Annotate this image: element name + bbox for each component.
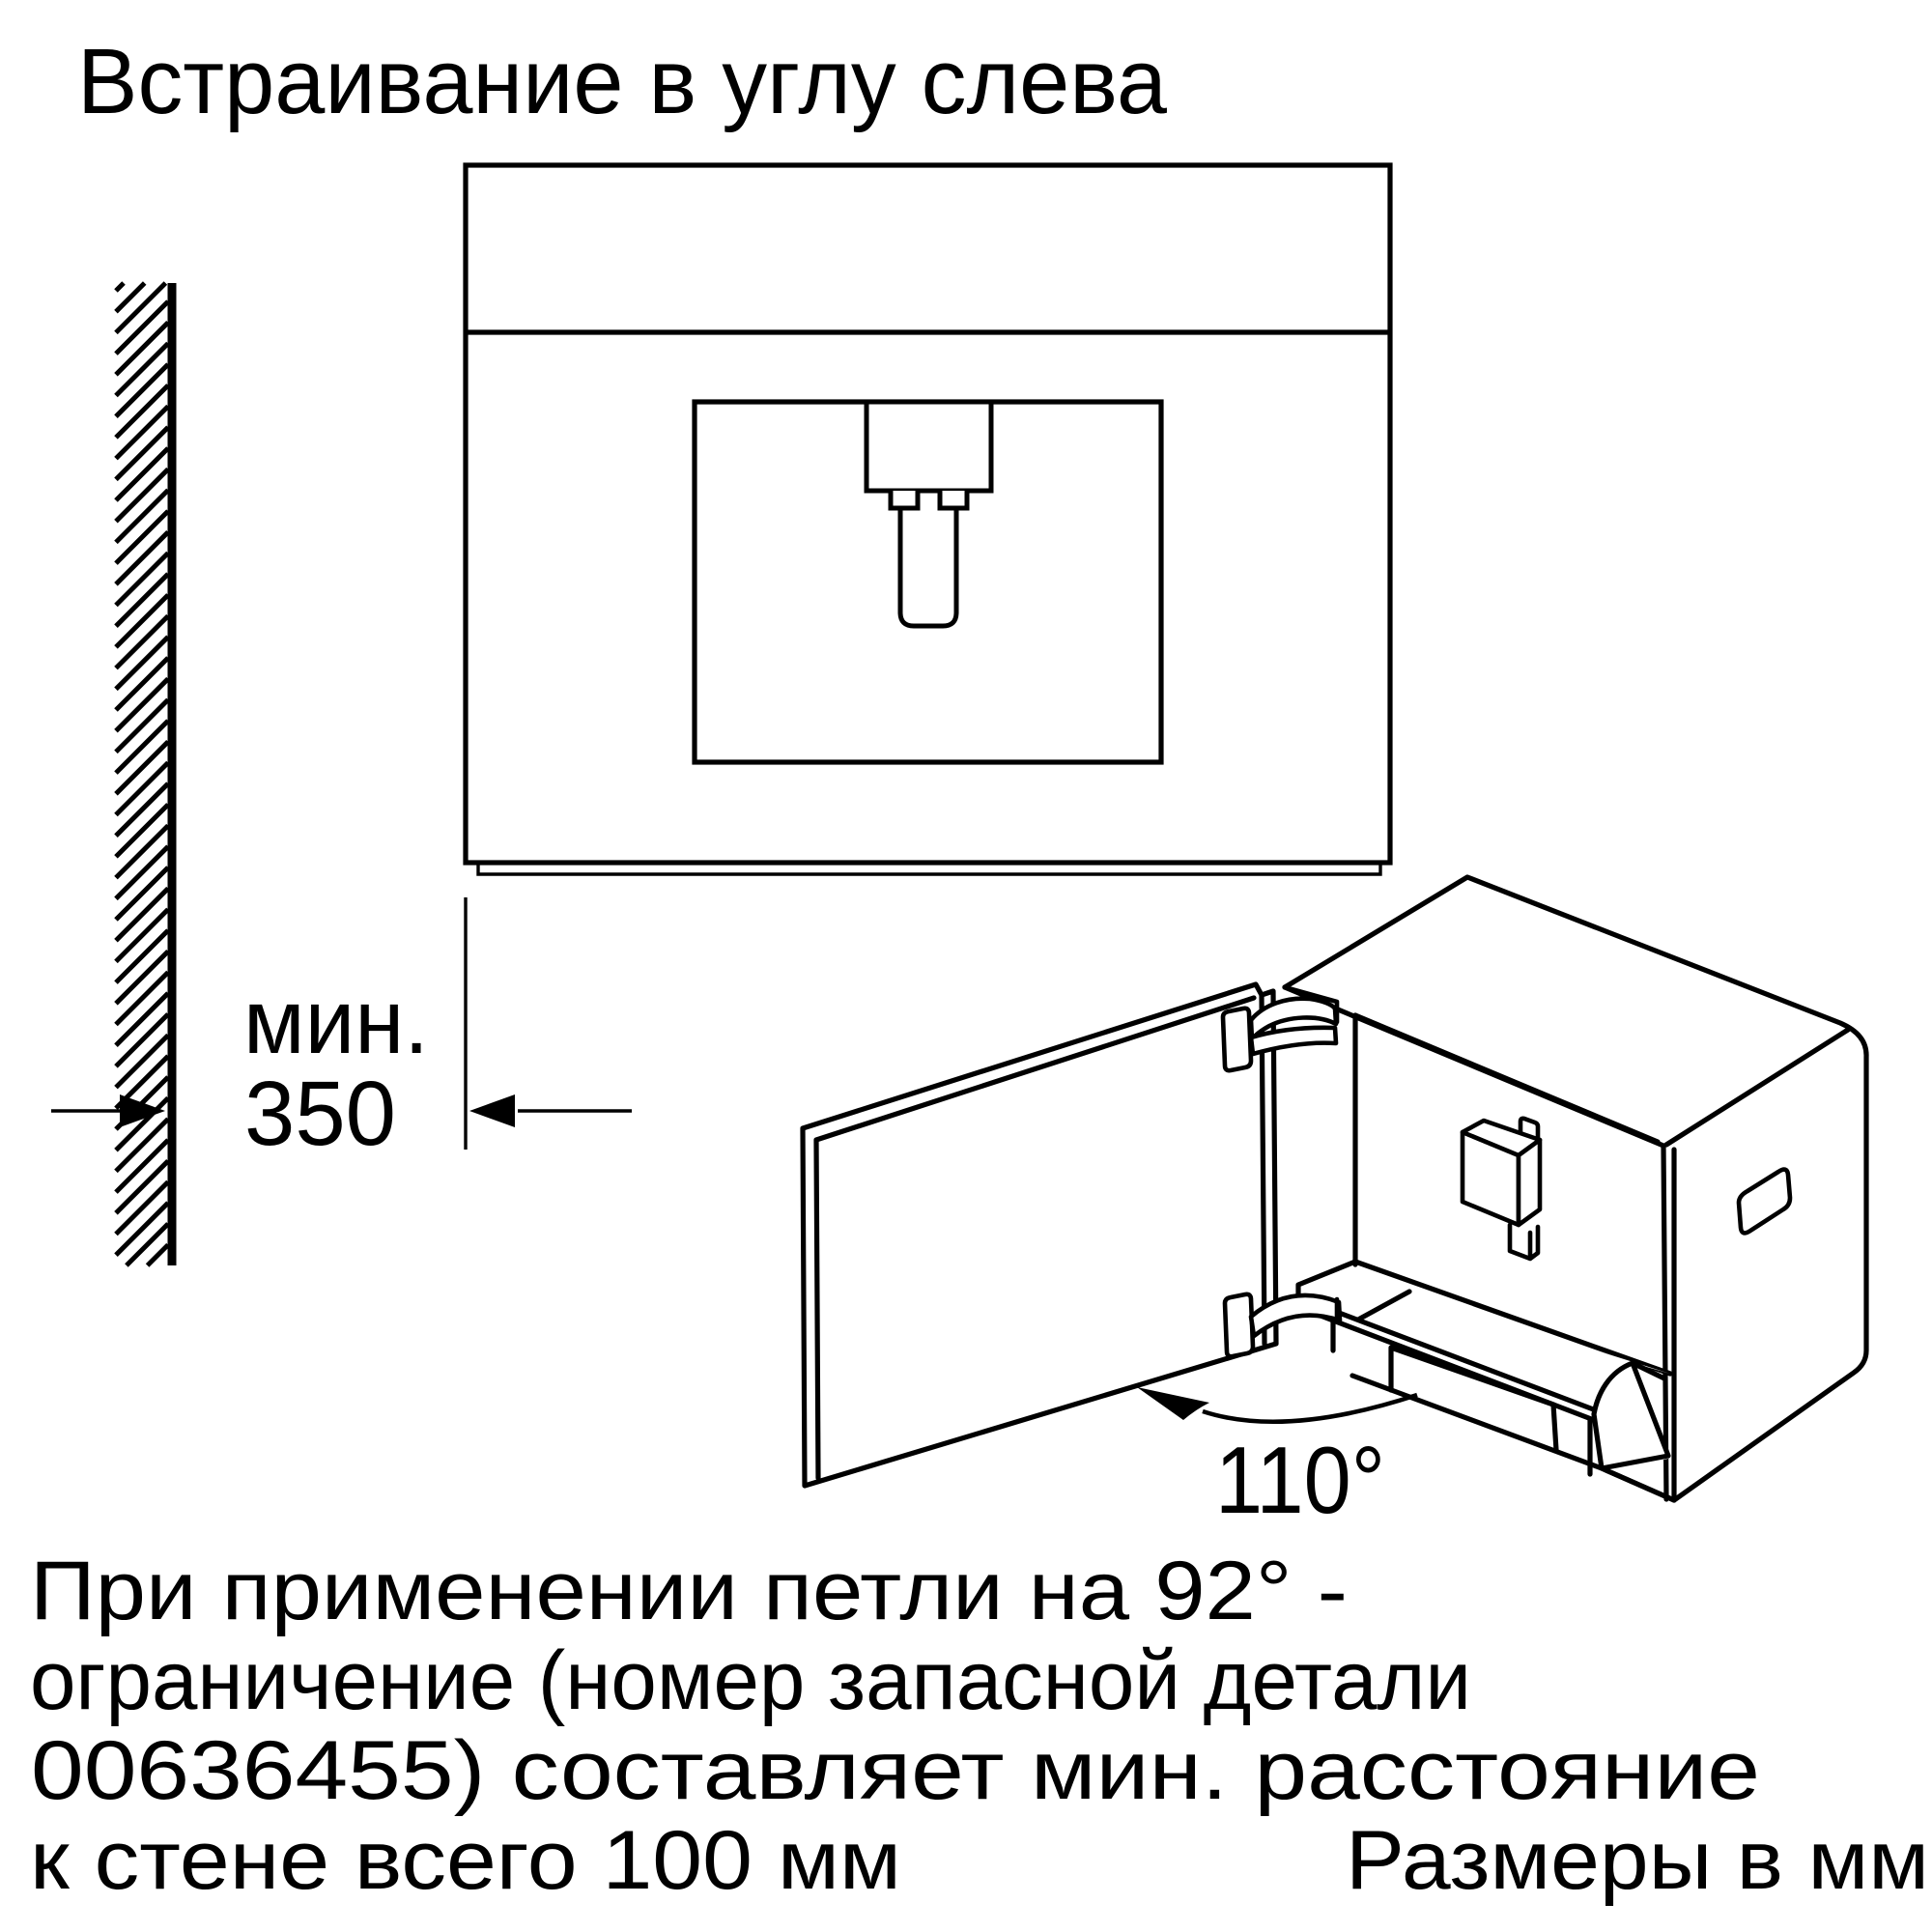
svg-text:350: 350 — [244, 1063, 396, 1165]
svg-text:110°: 110° — [1215, 1427, 1385, 1533]
svg-text:мин.: мин. — [243, 971, 429, 1073]
svg-text:к стене всего 100 мм: к стене всего 100 мм — [30, 1814, 901, 1907]
svg-text:Размеры в мм: Размеры в мм — [1346, 1814, 1929, 1907]
svg-text:00636455) составляет мин. расс: 00636455) составляет мин. расстояние — [31, 1724, 1760, 1817]
svg-text:ограничение (номер запасной де: ограничение (номер запасной детали — [30, 1634, 1471, 1727]
svg-text:Встраивание в углу слева: Встраивание в углу слева — [77, 30, 1168, 133]
svg-text:При применении петли на 92° -: При применении петли на 92° - — [30, 1545, 1348, 1637]
